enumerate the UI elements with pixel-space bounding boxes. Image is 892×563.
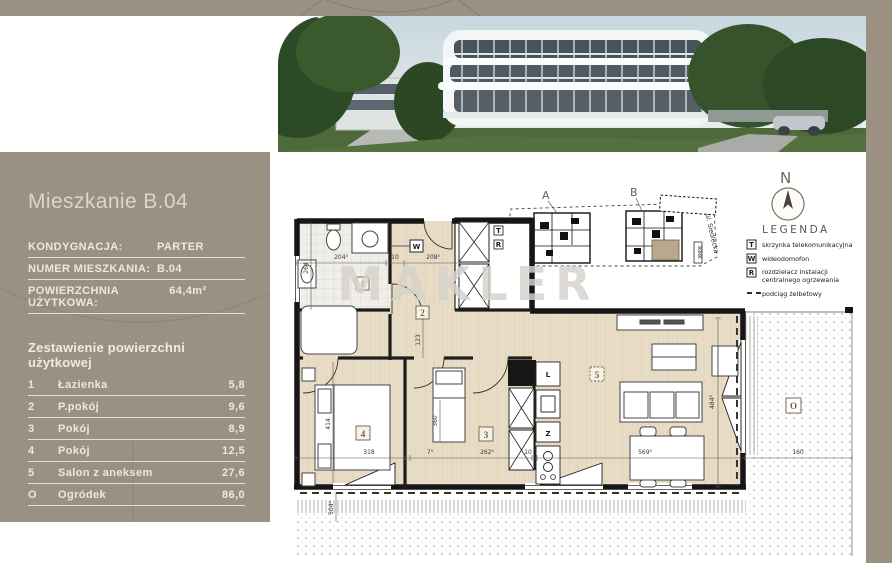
dim-room4-height: 414 — [325, 418, 332, 430]
legend-symbol-w: W — [748, 255, 756, 263]
legend-item-telecom: skrzynka telekomunikacyjna — [762, 241, 853, 249]
room-name: Pokój — [58, 445, 222, 457]
legend-item-heating-1: rozdzielacz instalacji — [762, 268, 828, 276]
room-area: 8,9 — [229, 423, 246, 435]
table-row: 3 Pokój 8,9 — [28, 418, 245, 440]
table-row: O Ogródek 86,0 — [28, 484, 245, 506]
dim-bath-height: 264 — [303, 262, 310, 274]
sidebar: Mieszkanie B.04 KONDYGNACJA: PARTER NUME… — [0, 152, 270, 522]
info-value: PARTER — [157, 241, 245, 253]
dim-room4-width: 318 — [363, 449, 375, 456]
dim-garden-width: 160 — [792, 449, 804, 456]
dim-room3-width: 262⁵ — [480, 449, 494, 456]
room-name: P.pokój — [58, 401, 229, 413]
legend-symbol-t: T — [749, 241, 754, 249]
compass-north-label: N — [780, 169, 791, 187]
room-name: Łazienka — [58, 379, 229, 391]
building-b-label: B — [630, 186, 638, 199]
room-area: 9,6 — [229, 401, 246, 413]
legend: LEGENDA T W R skrzynka telekomunikacyjna… — [747, 224, 853, 298]
garden-label: O — [790, 401, 797, 411]
area-table: 1 Łazienka 5,8 2 P.pokój 9,6 3 Pokój 8,9… — [28, 374, 245, 506]
compass: N — [772, 169, 804, 220]
room-number: 1 — [28, 379, 58, 391]
room-name: Ogródek — [58, 489, 222, 501]
building-a-label: A — [542, 189, 550, 202]
dim-wall-sep: 7⁵ — [427, 449, 434, 456]
table-row: 2 P.pokój 9,6 — [28, 396, 245, 418]
r-symbol: R — [496, 241, 502, 249]
fridge-symbol: L — [546, 371, 551, 379]
building-photo — [278, 16, 866, 152]
dim-salon-height: 484⁵ — [709, 394, 716, 408]
bedroom3-furniture — [433, 368, 465, 442]
top-band-ornament — [0, 0, 892, 16]
dim-garden-depth: 504⁰ — [328, 500, 335, 514]
room3-label: 3 — [484, 430, 489, 440]
dim-salon-width: 569⁵ — [638, 449, 652, 456]
info-label: KONDYGNACJA: — [28, 241, 123, 253]
info-row-floor: KONDYGNACJA: PARTER — [28, 236, 245, 258]
floor-plan: A B ul. Nad Torem ul. Siedlecka 36066 N … — [270, 152, 866, 563]
room-area: 86,0 — [222, 489, 245, 501]
plot-label: 36066 — [697, 245, 702, 259]
room-number: O — [28, 489, 58, 501]
room-area: 12,5 — [222, 445, 245, 457]
table-row: 1 Łazienka 5,8 — [28, 374, 245, 396]
highlighted-unit — [652, 240, 679, 260]
room-number: 5 — [28, 467, 58, 479]
logo-box — [0, 16, 270, 152]
top-band — [0, 0, 892, 16]
dishwasher-symbol: Z — [545, 430, 550, 438]
salon-label: 5 — [595, 370, 600, 380]
info-value: B.04 — [157, 263, 245, 275]
makler-watermark: MAKLER — [337, 257, 598, 311]
dim-hall-length: 123 — [415, 334, 422, 346]
wardrobe — [301, 306, 357, 354]
w-symbol: W — [413, 243, 421, 251]
room-name: Pokój — [58, 423, 229, 435]
room-name: Salon z aneksem — [58, 467, 222, 479]
apartment-info: KONDYGNACJA: PARTER NUMER MIESZKANIA: B.… — [28, 236, 245, 314]
apartment-title: Mieszkanie B.04 — [28, 190, 245, 214]
info-label: NUMER MIESZKANIA: — [28, 263, 150, 275]
info-value: 64,4m² — [169, 285, 245, 309]
room-area: 27,6 — [222, 467, 245, 479]
room-area: 5,8 — [229, 379, 246, 391]
t-symbol: T — [496, 227, 501, 235]
info-row-number: NUMER MIESZKANIA: B.04 — [28, 258, 245, 280]
info-row-area: POWIERZCHNIA UŻYTKOWA: 64,4m² — [28, 280, 245, 314]
room-number: 4 — [28, 445, 58, 457]
room-number: 2 — [28, 401, 58, 413]
dim-bed3-height: 360 — [432, 415, 439, 427]
legend-symbol-r: R — [749, 269, 755, 277]
street-siedlecka: ul. Siedlecka — [704, 213, 721, 254]
info-label: POWIERZCHNIA UŻYTKOWA: — [28, 285, 169, 309]
legend-item-heating-2: centralnego ogrzewania — [762, 276, 839, 284]
legend-title: LEGENDA — [762, 224, 830, 236]
table-row: 5 Salon z aneksem 27,6 — [28, 462, 245, 484]
dim-kitchen-gap: 10 — [524, 449, 532, 456]
right-margin-strip — [866, 0, 892, 563]
area-table-title: Zestawienie powierzchni użytkowej — [28, 340, 245, 370]
legend-item-videophone: wideodomofon — [762, 255, 809, 263]
table-row: 4 Pokój 12,5 — [28, 440, 245, 462]
legend-item-beam: podciąg żelbetowy — [762, 290, 822, 298]
room4-label: 4 — [361, 429, 366, 439]
apartment-card-page: Mieszkanie B.04 KONDYGNACJA: PARTER NUME… — [0, 0, 892, 563]
room-number: 3 — [28, 423, 58, 435]
bedroom4-furniture — [302, 368, 390, 486]
